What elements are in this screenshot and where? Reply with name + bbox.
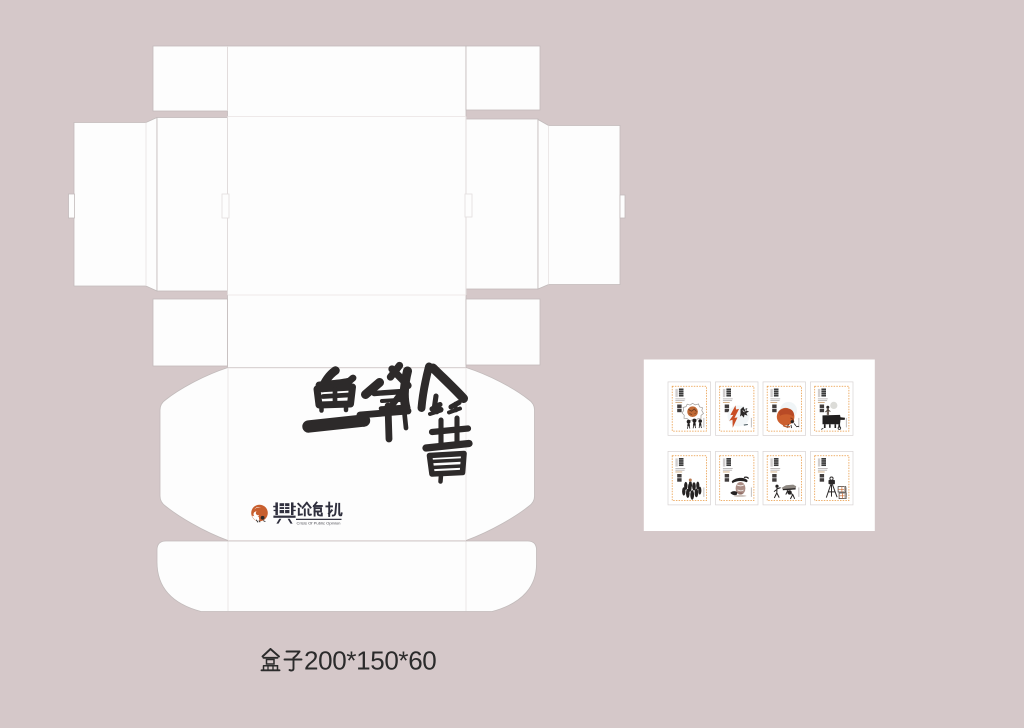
svg-text:Crisis Of Public Opinion: Crisis Of Public Opinion [297, 521, 341, 526]
svg-text:200*150*60: 200*150*60 [304, 646, 436, 676]
